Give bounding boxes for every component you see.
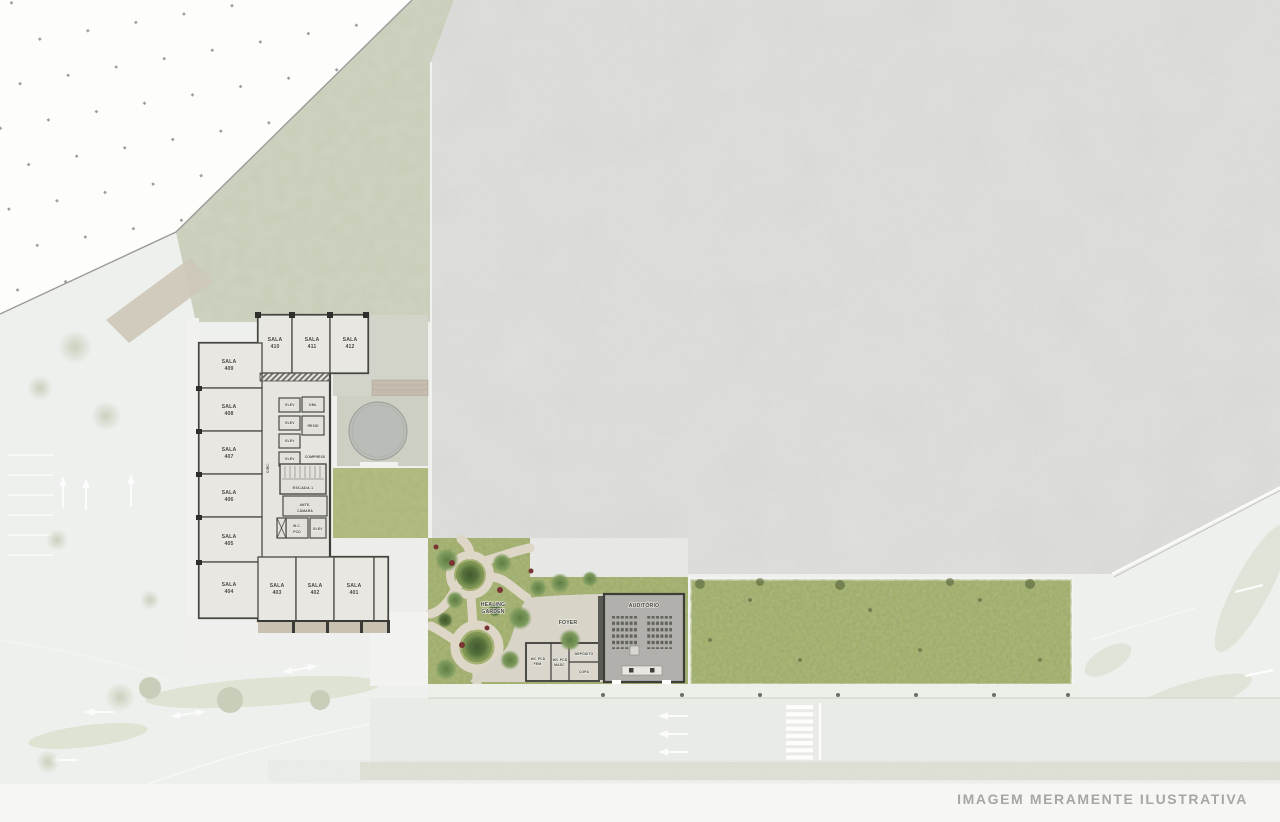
room-label-compress: COMPRESS bbox=[305, 455, 326, 459]
healing-garden-label: HEALING bbox=[481, 602, 505, 608]
room-label-sala-412: SALA bbox=[343, 337, 358, 343]
rooms-bottom-row bbox=[258, 557, 388, 621]
room-number-404: 404 bbox=[224, 589, 233, 595]
auditorium: AUDITÓRIO bbox=[598, 594, 684, 684]
sidewalk bbox=[186, 318, 199, 620]
room-number-401: 401 bbox=[349, 590, 358, 596]
covered-walkway bbox=[530, 538, 688, 577]
room-label-escada: ESCADA 1 bbox=[293, 485, 314, 490]
watermark-text: IMAGEM MERAMENTE ILUSTRATIVA bbox=[957, 791, 1248, 807]
room-label-elev: ELEV bbox=[285, 403, 295, 407]
concrete-roof bbox=[420, 0, 1280, 590]
room-label-sala-405: SALA bbox=[222, 534, 237, 540]
room-number-409: 409 bbox=[224, 366, 233, 372]
green-strip bbox=[685, 574, 1077, 690]
room-label-wc-pcd: PCD bbox=[293, 530, 301, 534]
room-label-wc-fem: WC PCD bbox=[531, 657, 546, 661]
room-label-antecamara: ANTE- bbox=[299, 503, 310, 507]
room-label-sala-402: SALA bbox=[308, 583, 323, 589]
room-label-wc-masc: MASC. bbox=[554, 663, 566, 667]
seat-block-right bbox=[646, 616, 672, 649]
room-label-wc-fem: FEM. bbox=[534, 662, 543, 666]
room-label-dml: DML bbox=[309, 403, 317, 407]
foyer-label: FOYER bbox=[559, 620, 578, 626]
canopy-hatch bbox=[260, 373, 330, 381]
room-label-sala-410: SALA bbox=[268, 337, 283, 343]
room-label-deposito: DEPÓSITO bbox=[575, 651, 594, 656]
room-label-elev: ELEV bbox=[285, 439, 295, 443]
room-label-wc-pcd: W.C. bbox=[293, 524, 301, 528]
room-label-sala-406: SALA bbox=[222, 490, 237, 496]
room-label-copa: COPA bbox=[579, 670, 590, 674]
room-label-wc-masc: WC PCD bbox=[553, 658, 568, 662]
room-label-sala-407: SALA bbox=[222, 447, 237, 453]
room-label-sala-404: SALA bbox=[222, 582, 237, 588]
room-number-411: 411 bbox=[308, 344, 317, 350]
rooms-left-wing bbox=[199, 343, 262, 618]
room-label-elev: ELEV bbox=[313, 527, 323, 531]
room-number-412: 412 bbox=[345, 344, 354, 350]
room-label-elev: ELEV bbox=[285, 421, 295, 425]
south-road bbox=[360, 684, 1280, 780]
room-label-resid: RESID bbox=[307, 424, 319, 428]
room-number-402: 402 bbox=[310, 590, 319, 596]
site-plan-canvas: WC PCD FEM. WC PCD MASC. DEPÓSITO COPA F… bbox=[0, 0, 1280, 822]
round-water-feature bbox=[349, 402, 407, 460]
corridor-label-circ: CIRC. bbox=[266, 463, 270, 473]
auditorium-label: AUDITÓRIO bbox=[629, 601, 659, 609]
stage-table bbox=[622, 666, 662, 675]
entrance-canopy bbox=[258, 621, 390, 633]
room-label-antecamara: CÂMARA bbox=[297, 508, 313, 513]
room-label-sala-403: SALA bbox=[270, 583, 285, 589]
room-label-sala-411: SALA bbox=[305, 337, 320, 343]
room-number-405: 405 bbox=[224, 541, 233, 547]
healing-garden-label: GARDEN bbox=[481, 609, 504, 615]
room-label-sala-408: SALA bbox=[222, 404, 237, 410]
room-number-403: 403 bbox=[272, 590, 281, 596]
room-label-sala-409: SALA bbox=[222, 359, 237, 365]
room-label-elev: ELEV bbox=[285, 457, 295, 461]
ramp bbox=[372, 380, 428, 396]
room-number-408: 408 bbox=[224, 411, 233, 417]
room-number-406: 406 bbox=[224, 497, 233, 503]
courtyard-lawn bbox=[330, 465, 432, 543]
seat-block-left bbox=[612, 616, 638, 649]
site-plan: WC PCD FEM. WC PCD MASC. DEPÓSITO COPA F… bbox=[0, 0, 1280, 822]
service-rooms: WC PCD FEM. WC PCD MASC. DEPÓSITO COPA bbox=[526, 643, 599, 681]
room-number-410: 410 bbox=[270, 344, 279, 350]
room-label-sala-401: SALA bbox=[347, 583, 362, 589]
room-number-407: 407 bbox=[224, 454, 233, 460]
